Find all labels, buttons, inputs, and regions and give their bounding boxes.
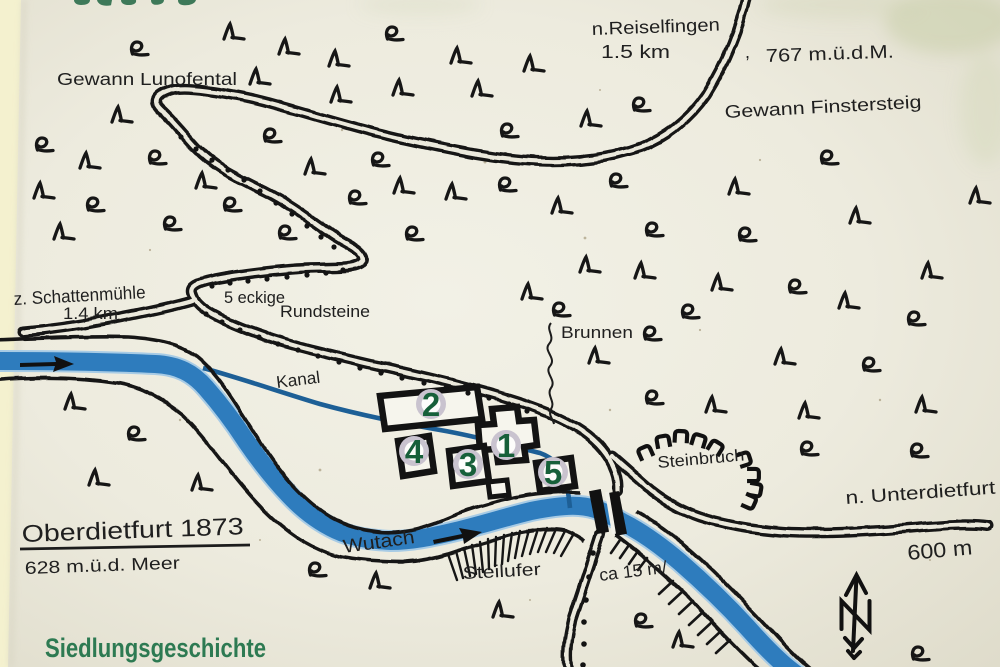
- svg-text:5 eckige: 5 eckige: [224, 289, 285, 307]
- svg-text:Brunnen: Brunnen: [561, 324, 633, 342]
- svg-text:767 m.ü.d.M.: 767 m.ü.d.M.: [765, 41, 894, 66]
- svg-text:5: 5: [544, 454, 562, 491]
- svg-text:,: ,: [745, 42, 750, 62]
- svg-text:2: 2: [422, 386, 440, 423]
- svg-text:Rundsteine: Rundsteine: [280, 303, 370, 321]
- svg-text:1: 1: [497, 427, 515, 464]
- svg-text:1.4 km: 1.4 km: [63, 304, 118, 323]
- svg-text:3: 3: [459, 446, 477, 483]
- svg-text:Siedlungsgeschichte: Siedlungsgeschichte: [45, 633, 266, 663]
- svg-text:4: 4: [405, 433, 424, 470]
- svg-text:Steilufer: Steilufer: [462, 559, 541, 583]
- svg-text:1.5 km: 1.5 km: [601, 42, 670, 62]
- svg-text:Gewann Lunofental: Gewann Lunofental: [57, 69, 237, 89]
